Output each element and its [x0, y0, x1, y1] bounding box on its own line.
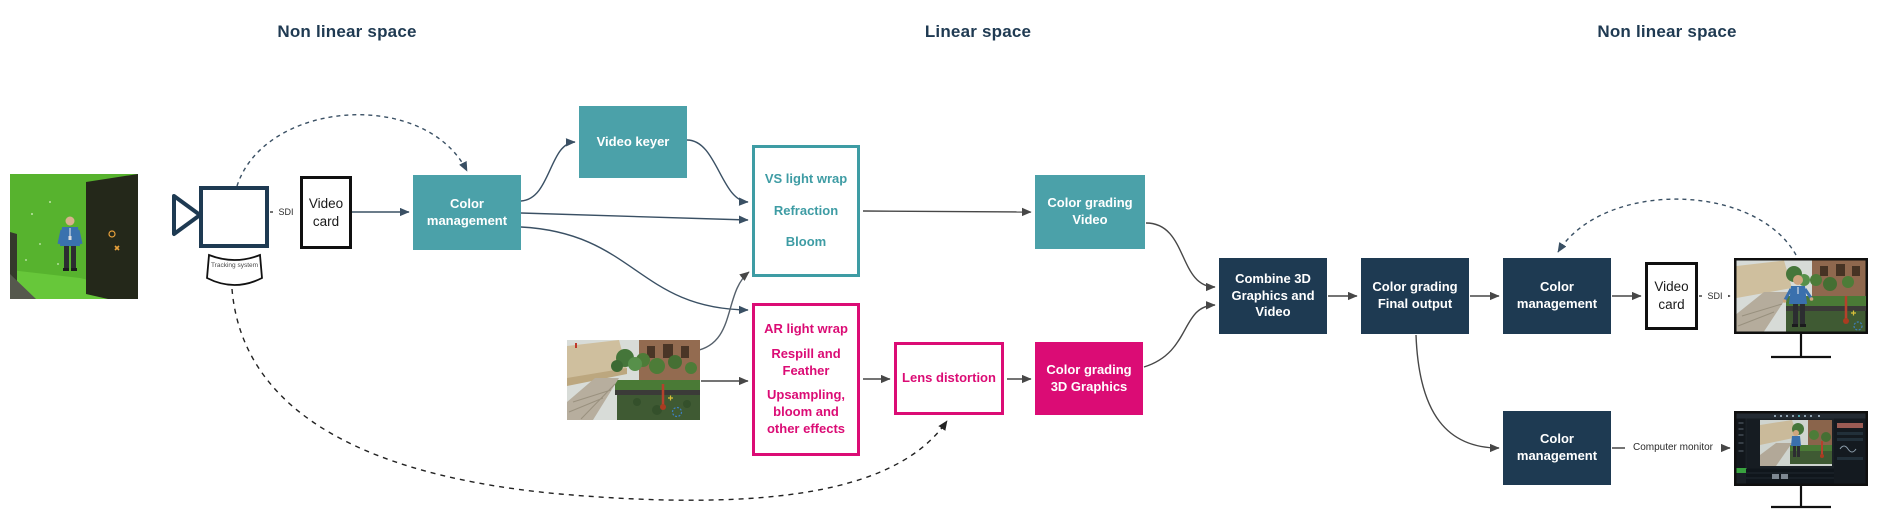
vs-effect-line: Bloom	[786, 234, 826, 251]
greenscreen-studio-image	[10, 174, 138, 299]
lens-distortion-box: Lens distortion	[894, 342, 1004, 415]
computer-monitor-label: Computer monitor	[1625, 442, 1721, 454]
vs-effect-line: VS light wrap	[765, 171, 847, 188]
video-camera-icon	[170, 184, 270, 250]
ar-effect-line: AR light wrap	[764, 321, 848, 338]
street-3d-graphics-image	[567, 340, 700, 420]
color-management-bottom-box: Color management	[1503, 411, 1611, 485]
vs-effect-line: Refraction	[774, 203, 838, 220]
color-management-in-box: Color management	[413, 175, 521, 250]
ar-effect-line: Upsampling, bloom and other effects	[759, 387, 853, 438]
video-keyer-box: Video keyer	[579, 106, 687, 178]
color-grading-3d-box: Color grading 3D Graphics	[1035, 342, 1143, 415]
ar-effects-box: AR light wrap Respill and Feather Upsamp…	[752, 303, 860, 456]
computer-monitor-image	[1734, 411, 1868, 486]
ar-effect-line: Respill and Feather	[759, 346, 853, 380]
color-grading-video-box: Color grading Video	[1035, 175, 1145, 249]
sdi-monitor-image	[1734, 258, 1868, 334]
sdi-label-in: SDI	[273, 207, 299, 218]
color-management-top-box: Color management	[1503, 258, 1611, 334]
vs-effects-box: VS light wrap Refraction Bloom	[752, 145, 860, 277]
tracking-system-label: Tracking system	[206, 262, 263, 270]
video-card-in-box: Video card	[300, 176, 352, 249]
color-grading-final-box: Color grading Final output	[1361, 258, 1469, 334]
pipeline-diagram: Non linear space Linear space Non linear…	[0, 0, 1883, 530]
combine-box: Combine 3D Graphics and Video	[1219, 258, 1327, 334]
sdi-label-out: SDI	[1702, 291, 1728, 302]
video-card-out-box: Video card	[1645, 262, 1698, 330]
